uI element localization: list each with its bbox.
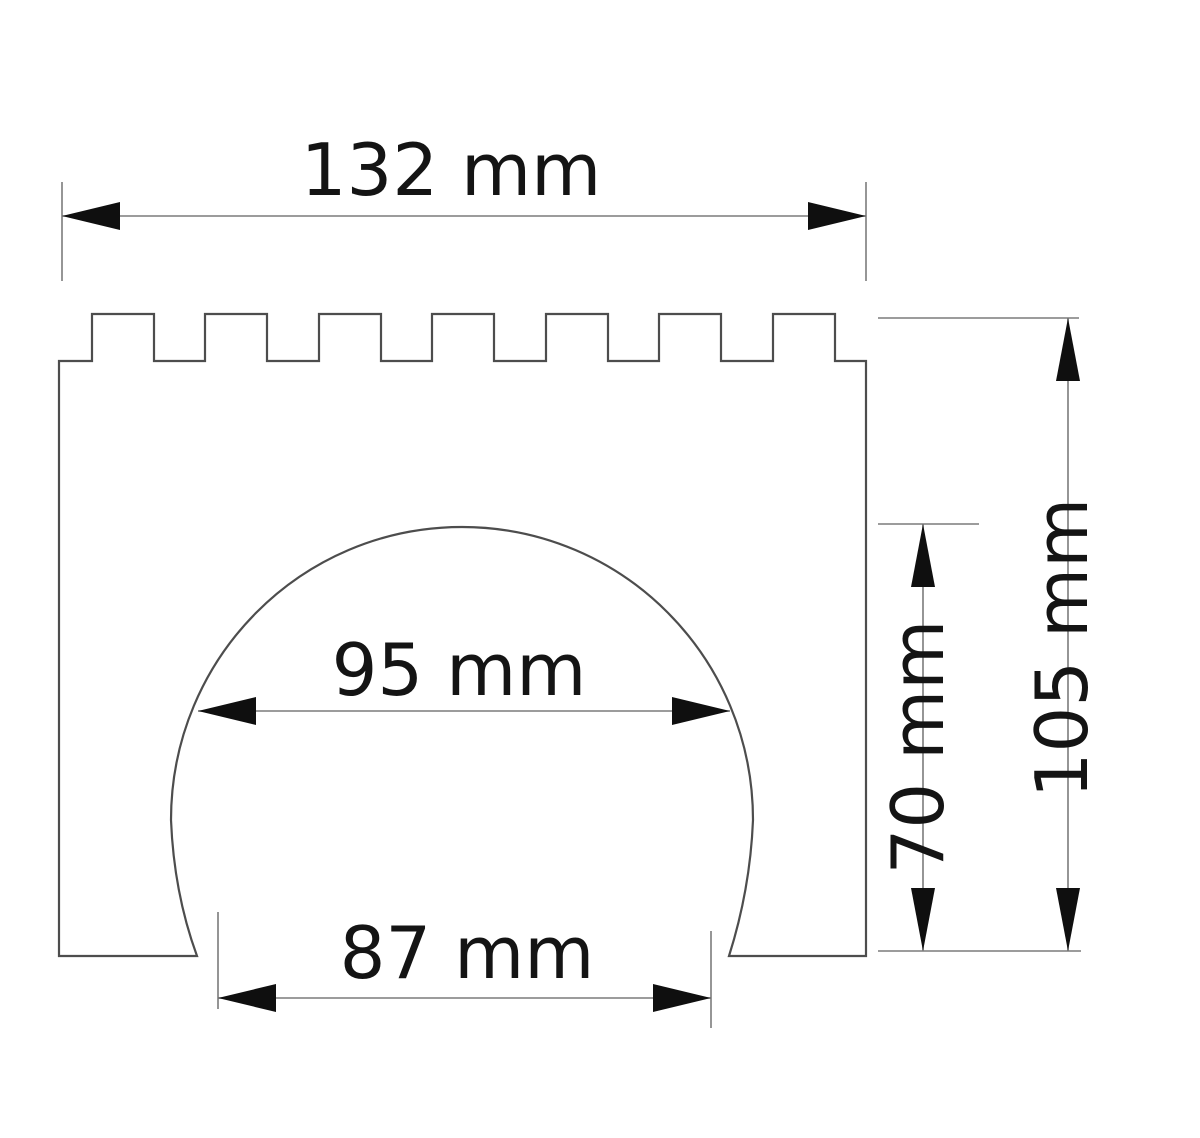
arrowhead-down-icon: [1056, 888, 1080, 951]
dimension-arch-width: 95 mm: [198, 628, 730, 725]
dimension-base-opening: 87 mm: [218, 911, 711, 1028]
arrowhead-down-icon: [911, 888, 935, 951]
dimension-label-arch-height: 70 mm: [876, 620, 960, 875]
dimension-label-arch-width: 95 mm: [332, 628, 587, 712]
dimension-label-overall-width: 132 mm: [301, 128, 602, 212]
arrowhead-left-icon: [62, 202, 120, 230]
dimension-label-overall-height: 105 mm: [1020, 498, 1104, 799]
dimension-overall-width: 132 mm: [62, 128, 866, 281]
arrowhead-up-icon: [911, 524, 935, 587]
arrowhead-left-icon: [198, 697, 256, 725]
drawing-canvas: 132 mm 95 mm 87 mm 70 mm: [0, 0, 1200, 1138]
arrowhead-right-icon: [808, 202, 866, 230]
technical-drawing: 132 mm 95 mm 87 mm 70 mm: [0, 0, 1200, 1138]
arrowhead-right-icon: [653, 984, 711, 1012]
dimension-arch-height: 70 mm: [876, 524, 979, 951]
arrowhead-right-icon: [672, 697, 730, 725]
dimension-label-base-opening: 87 mm: [340, 911, 595, 995]
arrowhead-up-icon: [1056, 318, 1080, 381]
arrowhead-left-icon: [218, 984, 276, 1012]
